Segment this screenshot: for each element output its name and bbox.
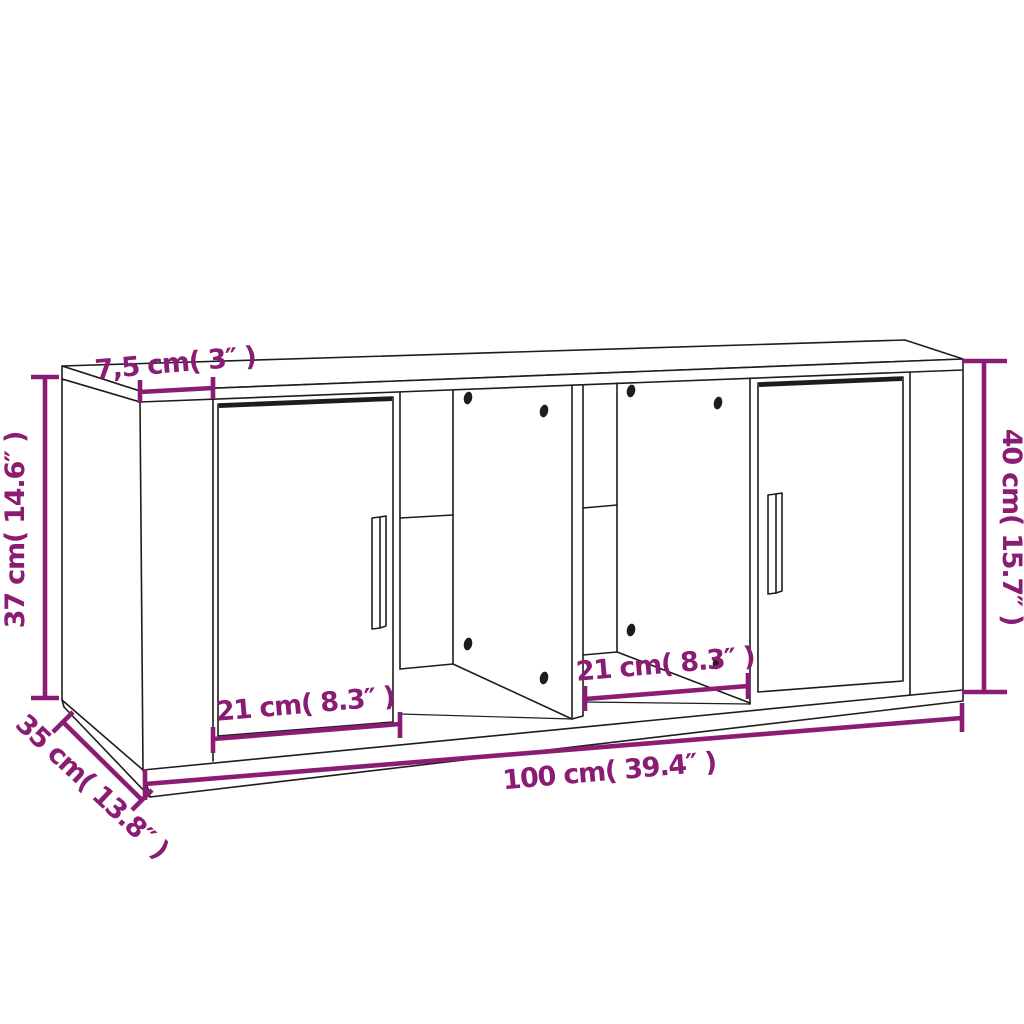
pin-hole — [463, 637, 474, 651]
dimension-depth: 35 cm( 13.8″ ) — [9, 708, 174, 865]
product-dimension-diagram: 7,5 cm( 3″ ) 37 cm( 14.6″ ) 40 cm( 15.7″… — [0, 0, 1024, 1024]
dimension-label: 35 cm( 13.8″ ) — [9, 708, 174, 865]
pin-hole — [626, 384, 637, 398]
right-door-panel — [758, 377, 903, 692]
left-side-panel — [62, 379, 143, 770]
dimension-line — [31, 377, 59, 698]
dimension-total-height: 40 cm( 15.7″ ) — [962, 361, 1024, 692]
dimension-side-height: 37 cm( 14.6″ ) — [0, 377, 59, 698]
dimension-label: 40 cm( 15.7″ ) — [996, 429, 1024, 625]
right-door — [758, 377, 903, 692]
cabinet-diagram-canvas: 7,5 cm( 3″ ) 37 cm( 14.6″ ) 40 cm( 15.7″… — [0, 0, 1024, 1024]
pin-hole — [713, 396, 724, 410]
dimension-label: 21 cm( 8.3″ ) — [575, 641, 756, 687]
dimension-label: 37 cm( 14.6″ ) — [0, 432, 31, 628]
pin-hole — [463, 391, 474, 405]
pin-hole — [539, 671, 550, 685]
left-compartment — [400, 385, 583, 719]
left-compartment-shelf-edge — [400, 515, 453, 518]
pin-hole — [539, 404, 550, 418]
right-compartment-floor-edge — [583, 702, 750, 704]
shelf-pin-holes — [463, 384, 724, 685]
left-compartment-floor-edge — [400, 714, 572, 719]
pin-hole — [626, 623, 637, 637]
left-compartment-divider-bottom — [453, 664, 572, 719]
dimension-right-compartment-width: 21 cm( 8.3″ ) — [575, 641, 756, 711]
left-compartment-wall-bottom — [400, 664, 453, 669]
right-compartment-shelf-edge — [583, 505, 617, 508]
